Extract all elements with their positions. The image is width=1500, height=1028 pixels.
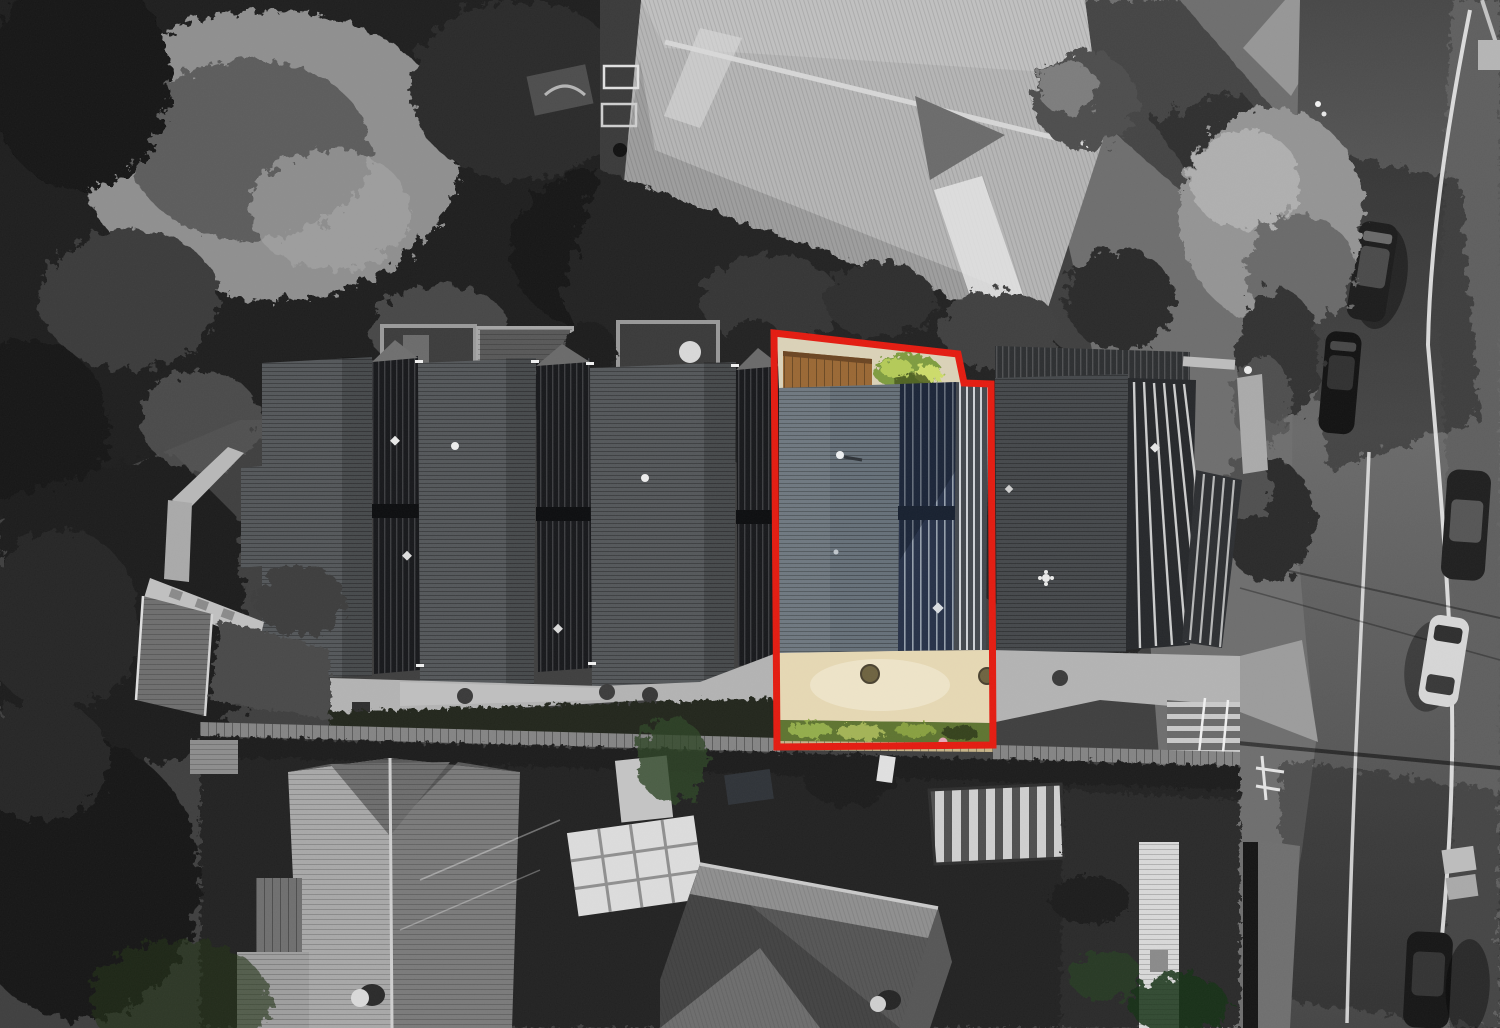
aerial-photo: [0, 0, 1500, 1028]
photo-grain: [0, 0, 1500, 1028]
